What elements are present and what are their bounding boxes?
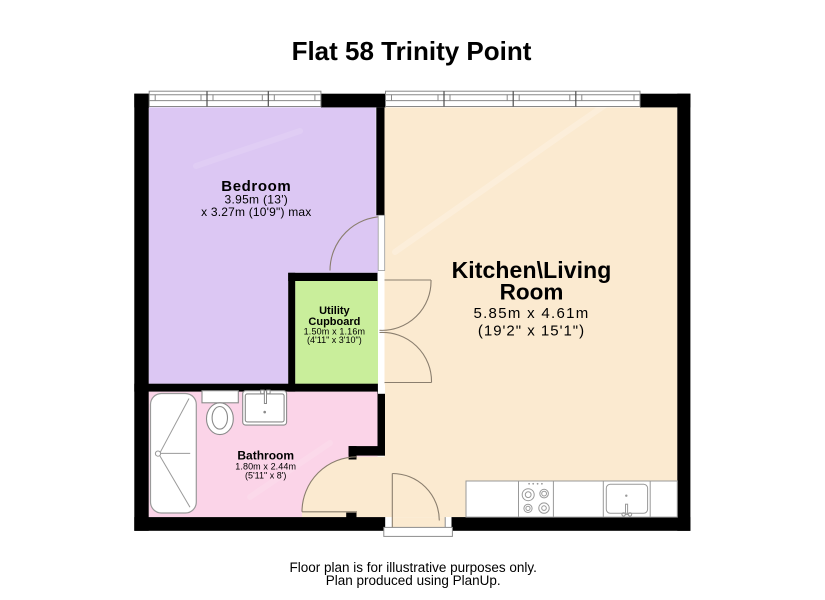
svg-text:Bathroom: Bathroom [237,448,294,462]
svg-text:Flat 58 Trinity Point: Flat 58 Trinity Point [292,36,532,66]
svg-text:(4'11" x 3'10"): (4'11" x 3'10") [307,335,362,345]
svg-text:Plan produced using PlanUp.: Plan produced using PlanUp. [326,573,501,588]
svg-text:Utility: Utility [319,305,350,317]
svg-text:5.85m x 4.61m: 5.85m x 4.61m [473,305,589,322]
svg-text:(5'11" x 8'): (5'11" x 8') [245,471,286,481]
svg-text:x 3.27m (10'9") max: x 3.27m (10'9") max [201,205,311,219]
svg-text:Room: Room [500,279,564,304]
svg-text:(19'2" x 15'1"): (19'2" x 15'1") [478,322,585,339]
